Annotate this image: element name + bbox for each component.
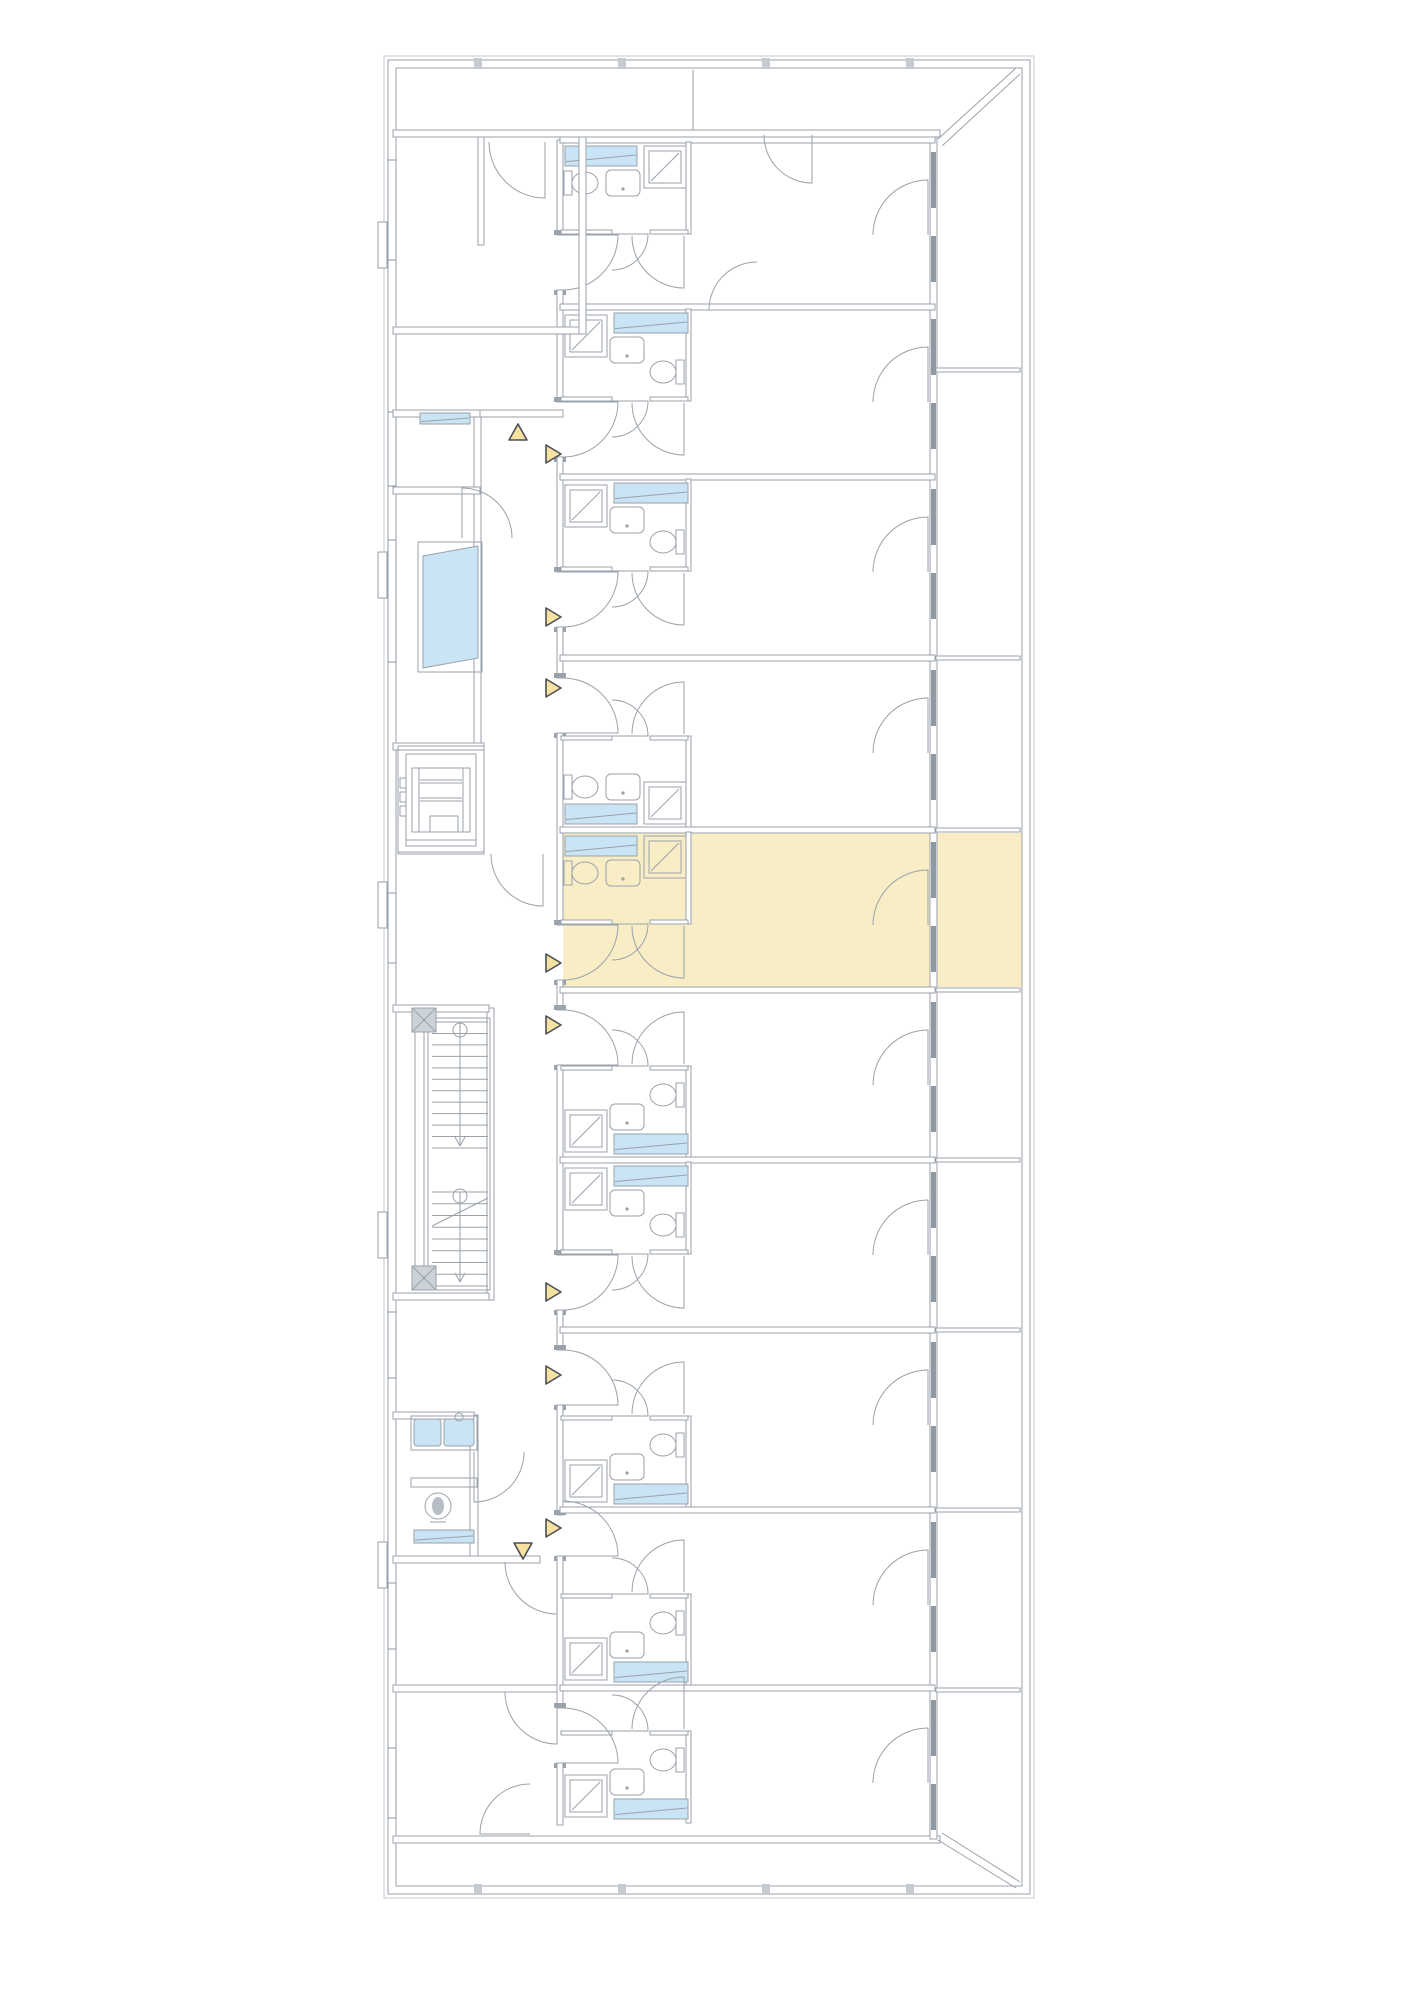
window-glazing — [931, 754, 936, 800]
window-glazing — [931, 1172, 936, 1228]
window-glazing — [931, 1606, 936, 1652]
kitchenette-counter — [614, 483, 688, 503]
kitchenette-counter — [614, 1662, 688, 1682]
window-glazing — [931, 1700, 936, 1756]
window-glazing — [931, 1002, 936, 1058]
kitchenette-counter — [614, 1799, 688, 1819]
basin — [444, 1419, 474, 1446]
floor-plan — [0, 0, 1414, 2000]
window-panel — [423, 546, 478, 668]
kitchenette-counter — [414, 1530, 474, 1543]
window-glazing — [931, 670, 936, 726]
window-glazing — [931, 1426, 936, 1472]
window-glazing — [931, 152, 936, 208]
kitchenette-counter — [565, 804, 637, 824]
window-glazing — [931, 319, 936, 375]
window-glazing — [931, 1784, 936, 1830]
window-glazing — [931, 1256, 936, 1302]
kitchenette-counter — [614, 313, 688, 333]
window-glazing — [931, 403, 936, 449]
window-glazing — [931, 1342, 936, 1398]
window-glazing — [931, 1086, 936, 1132]
kitchenette-counter — [614, 1484, 688, 1504]
kitchenette-counter — [565, 836, 637, 856]
floor-plan-svg — [0, 0, 1414, 2000]
window-glazing — [931, 842, 936, 898]
window-glazing — [931, 926, 936, 972]
window-glazing — [931, 236, 936, 282]
window-glazing — [931, 573, 936, 619]
kitchenette-counter — [420, 413, 470, 424]
kitchenette-counter — [614, 1166, 688, 1186]
kitchenette-counter — [614, 1134, 688, 1154]
basin — [414, 1419, 441, 1446]
window-glazing — [931, 1522, 936, 1578]
kitchenette-counter — [565, 146, 637, 166]
window-glazing — [931, 489, 936, 545]
